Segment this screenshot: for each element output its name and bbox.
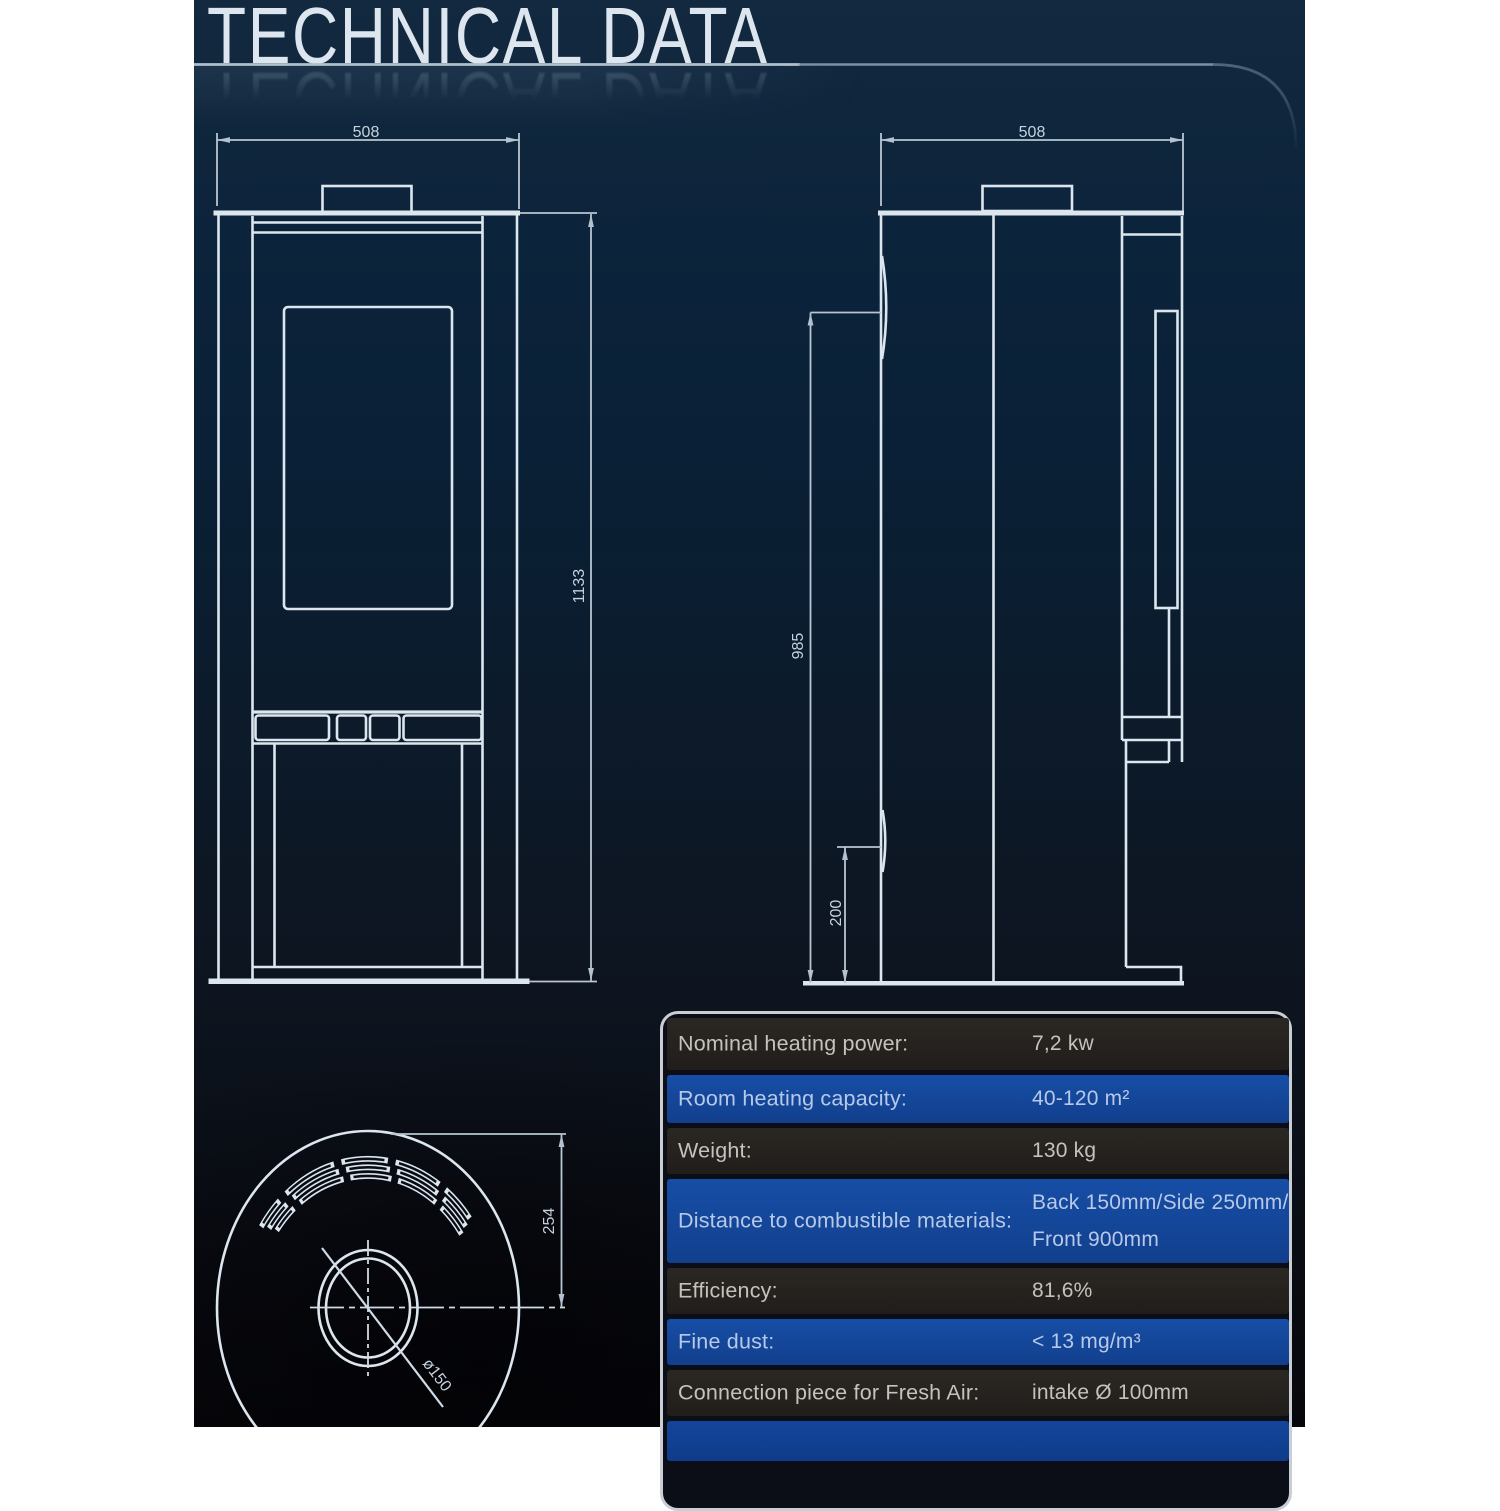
svg-text:ø150: ø150	[419, 1356, 455, 1395]
svg-text:200: 200	[828, 900, 845, 927]
svg-text:508: 508	[353, 124, 380, 141]
svg-text:985: 985	[790, 633, 807, 660]
svg-text:254: 254	[541, 1208, 558, 1235]
svg-text:1133: 1133	[571, 569, 588, 604]
svg-text:508: 508	[1019, 124, 1046, 141]
